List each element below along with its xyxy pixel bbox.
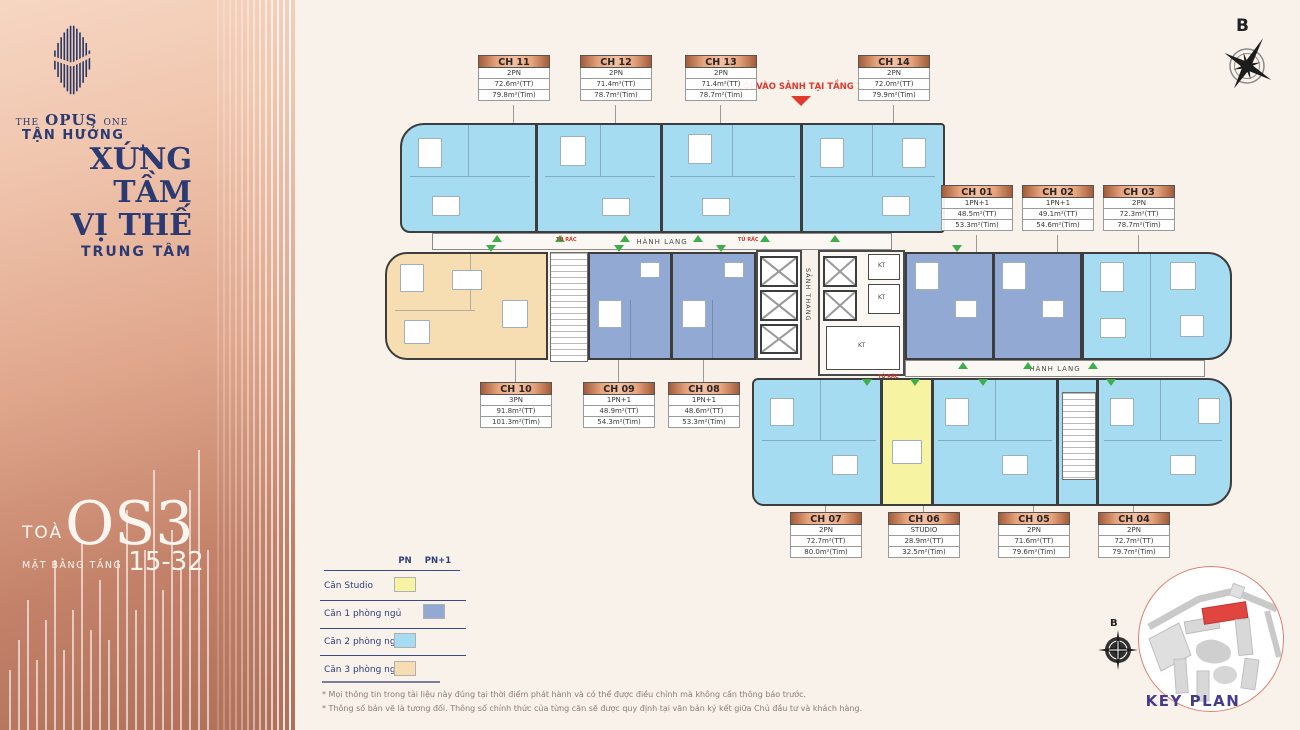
legend-label-studio: Căn Studio	[324, 581, 373, 591]
label-connector	[513, 105, 514, 123]
unit-label-ch04: CH 04 2PN 72.7m²(TT) 79.7m²(Tim)	[1098, 512, 1170, 558]
furniture	[724, 262, 744, 278]
legend-label-1pn: Căn 1 phòng ngủ	[324, 609, 401, 619]
unit-label-ch03: CH 03 2PN 72.3m²(TT) 78.7m²(Tim)	[1103, 185, 1175, 231]
compass-rose-icon	[1212, 28, 1282, 98]
furniture	[404, 320, 430, 344]
key-plan-map	[1138, 566, 1284, 712]
entrance-marker-icon	[760, 235, 770, 242]
unit-label-ch12: CH 12 2PN 71.4m²(TT) 78.7m²(Tim)	[580, 55, 652, 101]
unit-id: CH 09	[583, 382, 655, 395]
divider	[324, 570, 460, 571]
furniture	[1110, 398, 1134, 426]
lobby-label: SẢNH THANG	[804, 268, 812, 322]
unit-area-tt: 72.0m²(TT)	[858, 79, 930, 90]
unit-type: 1PN+1	[583, 395, 655, 406]
page: THE OPUS ONE TẬN HƯỞNG XỨNG TẦM VỊ THẾ T…	[0, 0, 1300, 730]
trash-chute-label: TỦ RÁC	[738, 237, 759, 243]
unit-area-tim: 78.7m²(Tim)	[685, 90, 757, 101]
unit-type: 1PN+1	[668, 395, 740, 406]
furniture	[955, 300, 977, 318]
label-connector	[703, 360, 704, 382]
unit-area-tt: 71.6m²(TT)	[998, 536, 1070, 547]
unit-area-tim: 79.6m²(Tim)	[998, 547, 1070, 558]
tagline-line2: XỨNG TẦM	[22, 143, 192, 209]
unit-label-ch02: CH 02 1PN+1 49.1m²(TT) 54.6m²(Tim)	[1022, 185, 1094, 231]
unit-area-tim: 101.3m²(Tim)	[480, 417, 552, 428]
furniture	[400, 264, 424, 292]
unit-label-ch09: CH 09 1PN+1 48.9m²(TT) 54.3m²(Tim)	[583, 382, 655, 428]
furniture	[1100, 318, 1126, 338]
unit-area-tim: 53.3m²(Tim)	[941, 220, 1013, 231]
staircase	[550, 252, 588, 362]
elevator	[823, 256, 857, 287]
label-connector	[976, 235, 977, 252]
unit-id: CH 12	[580, 55, 652, 68]
furniture	[452, 270, 482, 290]
furniture	[1002, 262, 1026, 290]
unit-type: 2PN	[580, 68, 652, 79]
furniture	[598, 300, 622, 328]
furniture	[832, 455, 858, 475]
unit-area-tt: 28.9m²(TT)	[888, 536, 960, 547]
label-connector	[720, 105, 721, 123]
unit-area-tt: 71.4m²(TT)	[685, 79, 757, 90]
entrance-marker-icon	[693, 235, 703, 242]
unit-type: 1PN+1	[941, 198, 1013, 209]
entrance-marker-icon	[486, 245, 496, 252]
furniture	[702, 198, 730, 216]
tagline-line3: VỊ THẾ	[22, 209, 192, 242]
unit-id: CH 06	[888, 512, 960, 525]
key-plan-compass-icon	[1096, 628, 1140, 672]
unit-id: CH 13	[685, 55, 757, 68]
furniture	[902, 138, 926, 168]
wall	[660, 123, 663, 233]
unit-id: CH 01	[941, 185, 1013, 198]
unit-type: 2PN	[790, 525, 862, 536]
wall	[1056, 378, 1059, 506]
label-connector	[618, 360, 619, 382]
entrance-marker-icon	[492, 235, 502, 242]
wall	[535, 123, 538, 233]
legend-swatch-1pn	[423, 604, 445, 619]
unit-area-tim: 78.7m²(Tim)	[580, 90, 652, 101]
wall	[992, 252, 995, 360]
unit-type: 2PN	[478, 68, 550, 79]
unit-label-ch14: CH 14 2PN 72.0m²(TT) 79.9m²(Tim)	[858, 55, 930, 101]
divider	[320, 628, 466, 629]
corridor-bottom-label: HÀNH LANG	[1029, 365, 1080, 373]
brand-one: ONE	[104, 118, 129, 128]
legend-label-3pn: Căn 3 phòng ngủ	[324, 665, 401, 675]
footnote-2: * Thông số bản vẽ là tương đối. Thông số…	[322, 704, 922, 713]
entrance-marker-icon	[620, 235, 630, 242]
staircase	[1062, 392, 1096, 480]
unit-area-tt: 91.8m²(TT)	[480, 406, 552, 417]
unit-area-tim: 79.7m²(Tim)	[1098, 547, 1170, 558]
unit-type: 1PN+1	[1022, 198, 1094, 209]
unit-area-tt: 72.6m²(TT)	[478, 79, 550, 90]
label-connector	[1138, 235, 1139, 252]
furniture	[1198, 398, 1220, 424]
unit-label-ch08: CH 08 1PN+1 48.6m²(TT) 53.3m²(Tim)	[668, 382, 740, 428]
furniture	[820, 138, 844, 168]
unit-area-tt: 72.7m²(TT)	[1098, 536, 1170, 547]
unit-area-tim: 32.5m²(Tim)	[888, 547, 960, 558]
footnote-1: * Mọi thông tin trong tài liệu này đúng …	[322, 690, 922, 699]
key-plan-title: KEY PLAN	[1108, 692, 1278, 710]
unit-label-ch06: CH 06 STUDIO 28.9m²(TT) 32.5m²(Tim)	[888, 512, 960, 558]
unit-area-tt: 48.6m²(TT)	[668, 406, 740, 417]
unit-id: CH 08	[668, 382, 740, 395]
unit-area-tim: 79.9m²(Tim)	[858, 90, 930, 101]
corridor-bottom: HÀNH LANG	[905, 360, 1205, 377]
entrance-marker-icon	[1106, 379, 1116, 386]
unit-id: CH 14	[858, 55, 930, 68]
entrance-marker-icon	[830, 235, 840, 242]
unit-type: 3PN	[480, 395, 552, 406]
unit-label-ch11: CH 11 2PN 72.6m²(TT) 79.8m²(Tim)	[478, 55, 550, 101]
unit-area-tt: 49.1m²(TT)	[1022, 209, 1094, 220]
shaft-label: KT	[858, 342, 865, 349]
unit-id: CH 02	[1022, 185, 1094, 198]
entrance-marker-icon	[958, 362, 968, 369]
furniture	[688, 134, 712, 164]
legend-col-pn1: PN+1	[416, 556, 460, 566]
furniture	[502, 300, 528, 328]
furniture	[1170, 262, 1196, 290]
key-plan-site-drawing	[1139, 567, 1283, 711]
tagline-line1: TẬN HƯỞNG	[22, 128, 192, 143]
unit-label-ch10: CH 10 3PN 91.8m²(TT) 101.3m²(Tim)	[480, 382, 552, 428]
floorplan-top-wing	[400, 123, 945, 233]
furniture	[1180, 315, 1204, 337]
sidebar: THE OPUS ONE TẬN HƯỞNG XỨNG TẦM VỊ THẾ T…	[0, 0, 295, 730]
furniture	[432, 196, 460, 216]
entrance-marker-icon	[952, 245, 962, 252]
tower-title-block: TOÀ OS3 MẶT BẰNG TẦNG 15-32	[22, 496, 204, 575]
label-connector	[615, 105, 616, 123]
unit-id: CH 04	[1098, 512, 1170, 525]
furniture	[945, 398, 969, 426]
unit-id: CH 03	[1103, 185, 1175, 198]
floor-plan-label: MẶT BẰNG TẦNG	[22, 560, 122, 571]
unit-area-tim: 53.3m²(Tim)	[668, 417, 740, 428]
entrance-marker-icon	[862, 379, 872, 386]
unit-area-tt: 48.9m²(TT)	[583, 406, 655, 417]
brand-the: THE	[16, 118, 39, 128]
unit-label-ch13: CH 13 2PN 71.4m²(TT) 78.7m²(Tim)	[685, 55, 757, 101]
unit-label-ch01: CH 01 1PN+1 48.5m²(TT) 53.3m²(Tim)	[941, 185, 1013, 231]
unit-type: 2PN	[685, 68, 757, 79]
furniture	[882, 196, 910, 216]
label-connector	[515, 360, 516, 382]
divider	[320, 600, 466, 601]
furniture	[560, 136, 586, 166]
furniture	[1002, 455, 1028, 475]
brand-block: THE OPUS ONE	[10, 22, 134, 129]
unit-id: CH 05	[998, 512, 1070, 525]
unit-area-tt: 71.4m²(TT)	[580, 79, 652, 90]
brand-opus: OPUS	[45, 111, 97, 129]
shaft-label: KT	[878, 262, 885, 269]
unit-type: 2PN	[1098, 525, 1170, 536]
furniture	[1042, 300, 1064, 318]
opus-one-logo-icon	[50, 22, 94, 98]
label-connector	[1057, 235, 1058, 252]
legend-swatch-studio	[394, 577, 416, 592]
elevator	[823, 290, 857, 321]
unit-type: STUDIO	[888, 525, 960, 536]
unit-label-ch07: CH 07 2PN 72.7m²(TT) 80.0m²(Tim)	[790, 512, 862, 558]
legend-label-2pn: Căn 2 phòng ngủ	[324, 637, 401, 647]
furniture	[892, 440, 922, 464]
unit-area-tim: 54.3m²(Tim)	[583, 417, 655, 428]
floor-range: 15-32	[128, 549, 204, 575]
unit-area-tt: 72.7m²(TT)	[790, 536, 862, 547]
unit-area-tt: 48.5m²(TT)	[941, 209, 1013, 220]
legend-swatch-3pn	[394, 661, 416, 676]
unit-area-tim: 79.8m²(Tim)	[478, 90, 550, 101]
furniture	[640, 262, 660, 278]
tower-prefix: TOÀ	[22, 523, 63, 543]
furniture	[602, 198, 630, 216]
unit-area-tim: 54.6m²(Tim)	[1022, 220, 1094, 231]
unit-area-tim: 78.7m²(Tim)	[1103, 220, 1175, 231]
furniture	[770, 398, 794, 426]
entry-arrow-icon	[791, 96, 811, 106]
tagline-block: TẬN HƯỞNG XỨNG TẦM VỊ THẾ TRUNG TÂM	[22, 128, 192, 260]
wall	[880, 378, 883, 506]
entrance-marker-icon	[614, 245, 624, 252]
tower-name: OS3	[65, 496, 193, 553]
entrance-marker-icon	[716, 245, 726, 252]
wall	[931, 378, 934, 506]
furniture	[418, 138, 442, 168]
wall	[1096, 378, 1099, 506]
entrance-marker-icon	[910, 379, 920, 386]
shaft-label: KT	[878, 294, 885, 301]
brand-name: THE OPUS ONE	[10, 110, 134, 129]
furniture	[682, 300, 706, 328]
furniture	[1100, 262, 1124, 292]
unit-type: 2PN	[1103, 198, 1175, 209]
tagline-line4: TRUNG TÂM	[22, 244, 192, 260]
entrance-marker-icon	[978, 379, 988, 386]
label-connector	[893, 105, 894, 123]
entrance-marker-icon	[1088, 362, 1098, 369]
legend-swatch-2pn	[394, 633, 416, 648]
elevator	[760, 256, 798, 287]
unit-area-tt: 72.3m²(TT)	[1103, 209, 1175, 220]
corridor-top-label: HÀNH LANG	[636, 238, 687, 246]
furniture	[915, 262, 939, 290]
entrance-marker-icon	[1023, 362, 1033, 369]
unit-type: 2PN	[998, 525, 1070, 536]
unit-id: CH 10	[480, 382, 552, 395]
unit-id: CH 07	[790, 512, 862, 525]
unit-id: CH 11	[478, 55, 550, 68]
unit-label-ch05: CH 05 2PN 71.6m²(TT) 79.6m²(Tim)	[998, 512, 1070, 558]
trash-chute-label: TỦ RÁC	[556, 237, 577, 243]
unit-area-tim: 80.0m²(Tim)	[790, 547, 862, 558]
wall	[800, 123, 803, 233]
wall	[670, 252, 673, 360]
elevator	[760, 324, 798, 354]
divider	[320, 655, 466, 656]
notes-divider	[322, 681, 440, 683]
unit-type: 2PN	[858, 68, 930, 79]
elevator	[760, 290, 798, 321]
furniture	[1170, 455, 1196, 475]
